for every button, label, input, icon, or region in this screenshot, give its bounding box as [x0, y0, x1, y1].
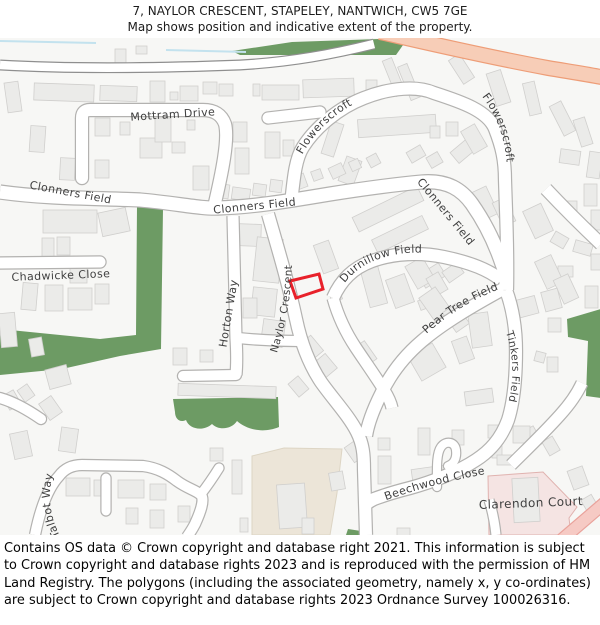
building [118, 480, 144, 498]
building [173, 348, 187, 365]
building [329, 471, 346, 491]
building [591, 254, 600, 270]
building [253, 84, 260, 96]
horton-stub [183, 375, 236, 376]
building [430, 126, 440, 138]
flowerscroft-stub [268, 112, 320, 118]
building [584, 184, 597, 206]
building [115, 49, 126, 63]
building [45, 285, 63, 311]
building [187, 120, 195, 130]
building [120, 122, 130, 135]
building [126, 508, 138, 524]
building [243, 298, 257, 318]
map-header: 7, NAYLOR CRESCENT, STAPELEY, NANTWICH, … [0, 0, 600, 38]
building [29, 337, 45, 357]
building [29, 126, 46, 153]
building [98, 207, 130, 236]
building [68, 288, 92, 310]
building [233, 122, 247, 142]
building [378, 438, 390, 450]
building [585, 286, 598, 308]
building [252, 183, 267, 197]
building [150, 484, 166, 500]
building [240, 518, 248, 532]
building [200, 350, 213, 362]
building [219, 84, 233, 96]
map-canvas: Mottram DriveClonners FieldChadwicke Clo… [0, 38, 600, 535]
building [262, 85, 299, 100]
building [193, 166, 209, 190]
building [446, 122, 458, 136]
building [547, 357, 558, 372]
copyright-notice: Contains OS data © Crown copyright and d… [0, 535, 600, 610]
building [95, 284, 109, 304]
building [170, 92, 178, 100]
building [43, 210, 97, 233]
building [203, 82, 217, 94]
building [100, 85, 138, 101]
building [269, 179, 283, 193]
building [210, 448, 223, 461]
building [172, 142, 185, 153]
building [265, 132, 280, 158]
building [235, 148, 249, 174]
building [150, 510, 164, 528]
map-container: Mottram DriveClonners FieldChadwicke Clo… [0, 38, 600, 535]
building [21, 282, 38, 310]
building [302, 518, 314, 534]
map-subtitle: Map shows position and indicative extent… [0, 19, 600, 35]
horton-east-link [238, 338, 299, 341]
building [548, 318, 561, 332]
building [34, 83, 95, 102]
building [397, 528, 410, 535]
building [57, 237, 70, 255]
building [95, 118, 110, 136]
building [559, 149, 581, 166]
building [303, 78, 355, 98]
building [150, 81, 165, 102]
building [418, 428, 430, 455]
building [95, 160, 109, 178]
property-map-page: 7, NAYLOR CRESCENT, STAPELEY, NANTWICH, … [0, 0, 600, 625]
building [468, 312, 493, 348]
building [59, 158, 75, 181]
building [180, 86, 198, 101]
building [178, 506, 190, 522]
building [534, 351, 546, 363]
building [0, 312, 17, 347]
property-address-title: 7, NAYLOR CRESCENT, STAPELEY, NANTWICH, … [0, 3, 600, 19]
building [136, 46, 147, 54]
building [232, 460, 242, 494]
building [378, 456, 391, 484]
building [58, 427, 78, 453]
building [66, 478, 90, 496]
chadwicke-close-road [0, 262, 100, 263]
